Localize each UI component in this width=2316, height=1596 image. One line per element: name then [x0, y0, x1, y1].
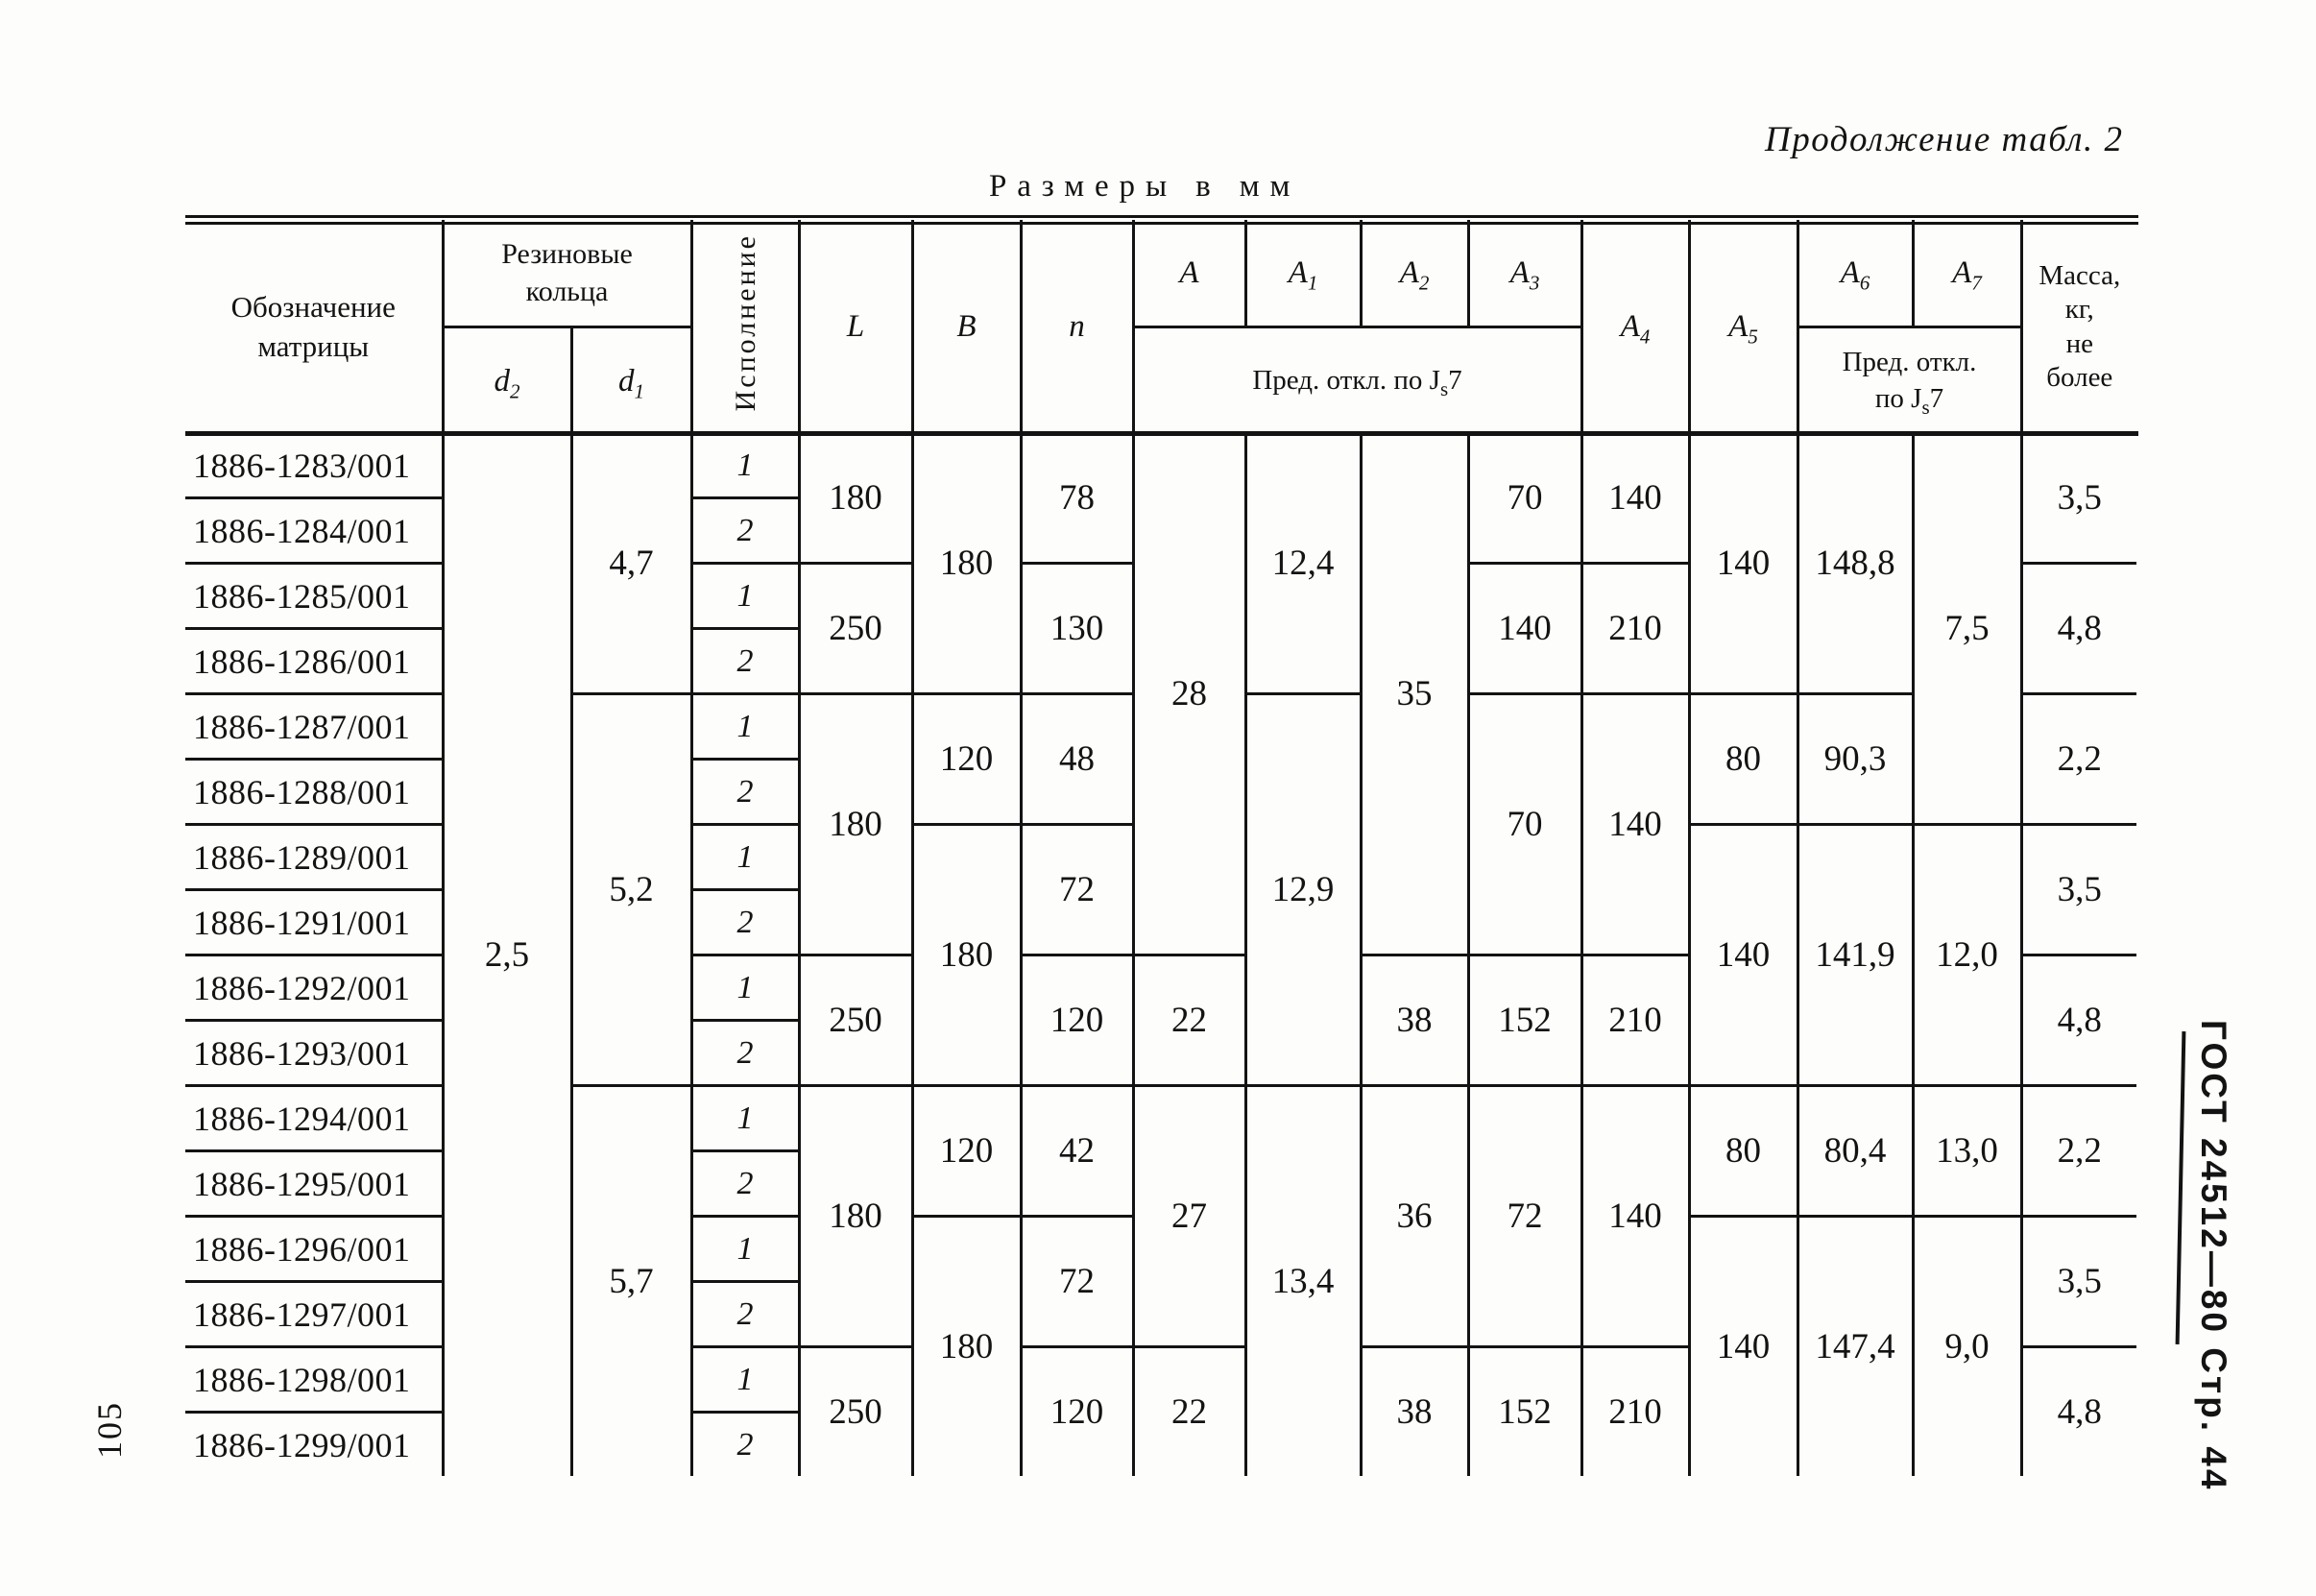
col-header-A2: A2 [1361, 220, 1468, 327]
A5-subscript: 5 [1748, 326, 1758, 349]
col-header-A3: A3 [1468, 220, 1581, 327]
tolerance-subscript: s [1440, 377, 1448, 400]
d1-label: d [618, 364, 635, 399]
cell-A3-rows-3-4: 140 [1468, 564, 1581, 694]
cell-A-rows-15-16: 22 [1133, 1347, 1245, 1477]
cell-A2-rows-15-16: 38 [1361, 1347, 1468, 1477]
cell-mass-rows-13-14: 3,5 [2021, 1217, 2136, 1347]
A6-subscript: 6 [1860, 271, 1870, 294]
cell-A7-rows-1-6: 7,5 [1913, 434, 2021, 825]
side-rule [2176, 1031, 2186, 1344]
cell-d1-rows-5-10: 5,2 [571, 694, 691, 1086]
cell-version-14: 2 [691, 1282, 799, 1347]
cell-n-rows-7-8: 72 [1021, 825, 1133, 955]
cell-version-1: 1 [691, 434, 799, 498]
cell-A4-rows-9-10: 210 [1581, 955, 1689, 1086]
cell-n-rows-15-16: 120 [1021, 1347, 1133, 1477]
cell-L-rows-1-2: 180 [799, 434, 912, 564]
col-header-B: B [912, 220, 1021, 434]
cell-L-rows-15-16: 250 [799, 1347, 912, 1477]
A7-label: A [1952, 255, 1971, 290]
A5-label: A [1728, 309, 1748, 344]
n-label: n [1069, 309, 1085, 344]
cell-A1-rows-5-10: 12,9 [1245, 694, 1361, 1086]
col-header-designation: Обозначение матрицы [185, 220, 443, 434]
cell-version-12: 2 [691, 1151, 799, 1217]
A7-subscript: 7 [1971, 271, 1982, 294]
cell-A1-rows-1-4: 12,4 [1245, 434, 1361, 694]
cell-version-3: 1 [691, 564, 799, 629]
cell-designation-6: 1886-1288/001 [185, 760, 443, 825]
cell-A3-rows-5-8: 70 [1468, 694, 1581, 955]
dimensions-table: Обозначение матрицы Резиновые кольца Исп… [185, 220, 2136, 1476]
cell-designation-5: 1886-1287/001 [185, 694, 443, 760]
cell-A2-rows-9-10: 38 [1361, 955, 1468, 1086]
A1-subscript: 1 [1308, 271, 1318, 294]
cell-designation-15: 1886-1298/001 [185, 1347, 443, 1413]
cell-B-rows-11-12: 120 [912, 1086, 1021, 1217]
table-continuation-label: Продолжение табл. 2 [1765, 119, 2149, 160]
cell-B-rows-13-16: 180 [912, 1217, 1021, 1477]
d2-subscript: 2 [510, 379, 520, 402]
cell-version-6: 2 [691, 760, 799, 825]
col-header-A6: A6 [1797, 220, 1913, 327]
cell-A2-rows-1-8: 35 [1361, 434, 1468, 955]
cell-version-11: 1 [691, 1086, 799, 1151]
tolerance2-line1: Пред. откл. [1843, 347, 1977, 377]
col-header-mass: Масса, кг, не более [2021, 220, 2136, 434]
cell-designation-11: 1886-1294/001 [185, 1086, 443, 1151]
cell-designation-4: 1886-1286/001 [185, 629, 443, 694]
cell-n-rows-5-6: 48 [1021, 694, 1133, 825]
cell-A7-rows-11-12: 13,0 [1913, 1086, 2021, 1217]
cell-n-rows-3-4: 130 [1021, 564, 1133, 694]
scanned-document-page: Продолжение табл. 2 Размеры в мм Обознач… [0, 0, 2316, 1596]
cell-mass-rows-3-4: 4,8 [2021, 564, 2136, 694]
cell-d1-rows-11-16: 5,7 [571, 1086, 691, 1477]
cell-A7-rows-13-16: 9,0 [1913, 1217, 2021, 1477]
cell-A6-rows-1-4: 148,8 [1797, 434, 1913, 694]
header-row-top: Обозначение матрицы Резиновые кольца Исп… [185, 220, 2136, 327]
col-header-n: n [1021, 220, 1133, 434]
cell-version-4: 2 [691, 629, 799, 694]
col-header-A5: A5 [1689, 220, 1797, 434]
cell-A6-rows-7-10: 141,9 [1797, 825, 1913, 1086]
cell-version-5: 1 [691, 694, 799, 760]
cell-A3-rows-11-14: 72 [1468, 1086, 1581, 1347]
A6-label: A [1841, 255, 1860, 290]
A4-label: A [1621, 309, 1640, 344]
tolerance2-subscript: s [1921, 396, 1929, 419]
A3-subscript: 3 [1530, 271, 1540, 294]
cell-version-16: 2 [691, 1413, 799, 1477]
version-header-label: Исполнение [727, 233, 764, 411]
cell-A5-rows-13-16: 140 [1689, 1217, 1797, 1477]
cell-version-7: 1 [691, 825, 799, 890]
cell-designation-8: 1886-1291/001 [185, 890, 443, 955]
cell-A4-rows-11-14: 140 [1581, 1086, 1689, 1347]
A4-subscript: 4 [1640, 326, 1651, 349]
cell-mass-rows-7-8: 3,5 [2021, 825, 2136, 955]
cell-A5-rows-11-12: 80 [1689, 1086, 1797, 1217]
cell-designation-2: 1886-1284/001 [185, 498, 443, 564]
d2-label: d [495, 364, 511, 399]
A1-label: A [1289, 255, 1308, 290]
cell-A4-rows-3-4: 210 [1581, 564, 1689, 694]
designation-header-label: Обозначение матрицы [231, 290, 396, 362]
cell-designation-9: 1886-1292/001 [185, 955, 443, 1021]
table-body: 1886-1283/0012,54,71180180782812,4357014… [185, 434, 2136, 1476]
cell-A2-rows-11-14: 36 [1361, 1086, 1468, 1347]
col-header-d2: d2 [443, 327, 571, 435]
cell-A6-rows-13-16: 147,4 [1797, 1217, 1913, 1477]
table-row-1: 1886-1283/0012,54,71180180782812,4357014… [185, 434, 2136, 498]
col-header-d1: d1 [571, 327, 691, 435]
B-label: B [956, 309, 976, 344]
cell-A3-rows-9-10: 152 [1468, 955, 1581, 1086]
cell-L-rows-3-4: 250 [799, 564, 912, 694]
L-label: L [847, 309, 864, 344]
cell-B-rows-5-6: 120 [912, 694, 1021, 825]
cell-A-rows-11-14: 27 [1133, 1086, 1245, 1347]
header-row-bottom: d2 d1 Пред. откл. по Js7 Пред. откл.по J… [185, 327, 2136, 435]
units-label: Размеры в мм [989, 169, 1300, 205]
gost-side-label: ГОСТ 24512—80 Стр. 44 [2193, 1020, 2233, 1366]
cell-version-8: 2 [691, 890, 799, 955]
tolerance-grade: 7 [1448, 365, 1462, 396]
col-header-A1: A1 [1245, 220, 1361, 327]
col-header-A7: A7 [1913, 220, 2021, 327]
cell-designation-12: 1886-1295/001 [185, 1151, 443, 1217]
cell-A3-rows-1-2: 70 [1468, 434, 1581, 564]
cell-d2-rows-1-16: 2,5 [443, 434, 571, 1476]
cell-designation-1: 1886-1283/001 [185, 434, 443, 498]
cell-L-rows-5-8: 180 [799, 694, 912, 955]
cell-designation-16: 1886-1299/001 [185, 1413, 443, 1477]
cell-mass-rows-11-12: 2,2 [2021, 1086, 2136, 1217]
cell-A7-rows-7-10: 12,0 [1913, 825, 2021, 1086]
cell-A5-rows-1-4: 140 [1689, 434, 1797, 694]
col-header-L: L [799, 220, 912, 434]
A-label: A [1179, 255, 1198, 290]
cell-n-rows-1-2: 78 [1021, 434, 1133, 564]
cell-mass-rows-1-2: 3,5 [2021, 434, 2136, 564]
cell-version-13: 1 [691, 1217, 799, 1282]
cell-A5-rows-5-6: 80 [1689, 694, 1797, 825]
cell-n-rows-9-10: 120 [1021, 955, 1133, 1086]
cell-A6-rows-11-12: 80,4 [1797, 1086, 1913, 1217]
rubber-rings-label: Резиновые кольца [501, 238, 633, 307]
cell-d1-rows-1-4: 4,7 [571, 434, 691, 694]
col-header-A4: A4 [1581, 220, 1689, 434]
cell-B-rows-7-10: 180 [912, 825, 1021, 1086]
cell-designation-7: 1886-1289/001 [185, 825, 443, 890]
cell-A5-rows-7-10: 140 [1689, 825, 1797, 1086]
cell-designation-14: 1886-1297/001 [185, 1282, 443, 1347]
cell-A-rows-1-8: 28 [1133, 434, 1245, 955]
table-header: Обозначение матрицы Резиновые кольца Исп… [185, 220, 2136, 434]
cell-mass-rows-9-10: 4,8 [2021, 955, 2136, 1086]
d1-subscript: 1 [635, 379, 645, 402]
A2-subscript: 2 [1419, 271, 1430, 294]
cell-version-9: 1 [691, 955, 799, 1021]
tolerance2-line2: по J [1875, 383, 1922, 414]
cell-version-10: 2 [691, 1021, 799, 1086]
cell-A3-rows-15-16: 152 [1468, 1347, 1581, 1477]
cell-version-15: 1 [691, 1347, 799, 1413]
cell-A4-rows-5-8: 140 [1581, 694, 1689, 955]
tolerance-header-A6-A7: Пред. откл.по Js7 [1797, 327, 2021, 435]
tolerance-text: Пред. откл. по J [1252, 365, 1440, 396]
mass-header-label: Масса, кг, не более [2039, 260, 2120, 393]
cell-L-rows-9-10: 250 [799, 955, 912, 1086]
cell-mass-rows-15-16: 4,8 [2021, 1347, 2136, 1477]
cell-version-2: 2 [691, 498, 799, 564]
cell-A6-rows-5-6: 90,3 [1797, 694, 1913, 825]
cell-mass-rows-5-6: 2,2 [2021, 694, 2136, 825]
A2-label: A [1400, 255, 1419, 290]
cell-A4-rows-1-2: 140 [1581, 434, 1689, 564]
tolerance-header-A-A3: Пред. откл. по Js7 [1133, 327, 1581, 435]
col-header-version: Исполнение [691, 220, 799, 434]
col-header-A: A [1133, 220, 1245, 327]
cell-A-rows-9-10: 22 [1133, 955, 1245, 1086]
cell-n-rows-11-12: 42 [1021, 1086, 1133, 1217]
col-header-rubber-rings: Резиновые кольца [443, 220, 691, 327]
cell-A1-rows-11-16: 13,4 [1245, 1086, 1361, 1477]
cell-A4-rows-15-16: 210 [1581, 1347, 1689, 1477]
page-number: 105 [89, 1401, 130, 1459]
cell-B-rows-1-4: 180 [912, 434, 1021, 694]
cell-L-rows-11-14: 180 [799, 1086, 912, 1347]
cell-n-rows-13-14: 72 [1021, 1217, 1133, 1347]
A3-label: A [1510, 255, 1530, 290]
cell-designation-13: 1886-1296/001 [185, 1217, 443, 1282]
cell-designation-3: 1886-1285/001 [185, 564, 443, 629]
tolerance2-grade: 7 [1930, 383, 1944, 414]
cell-designation-10: 1886-1293/001 [185, 1021, 443, 1086]
